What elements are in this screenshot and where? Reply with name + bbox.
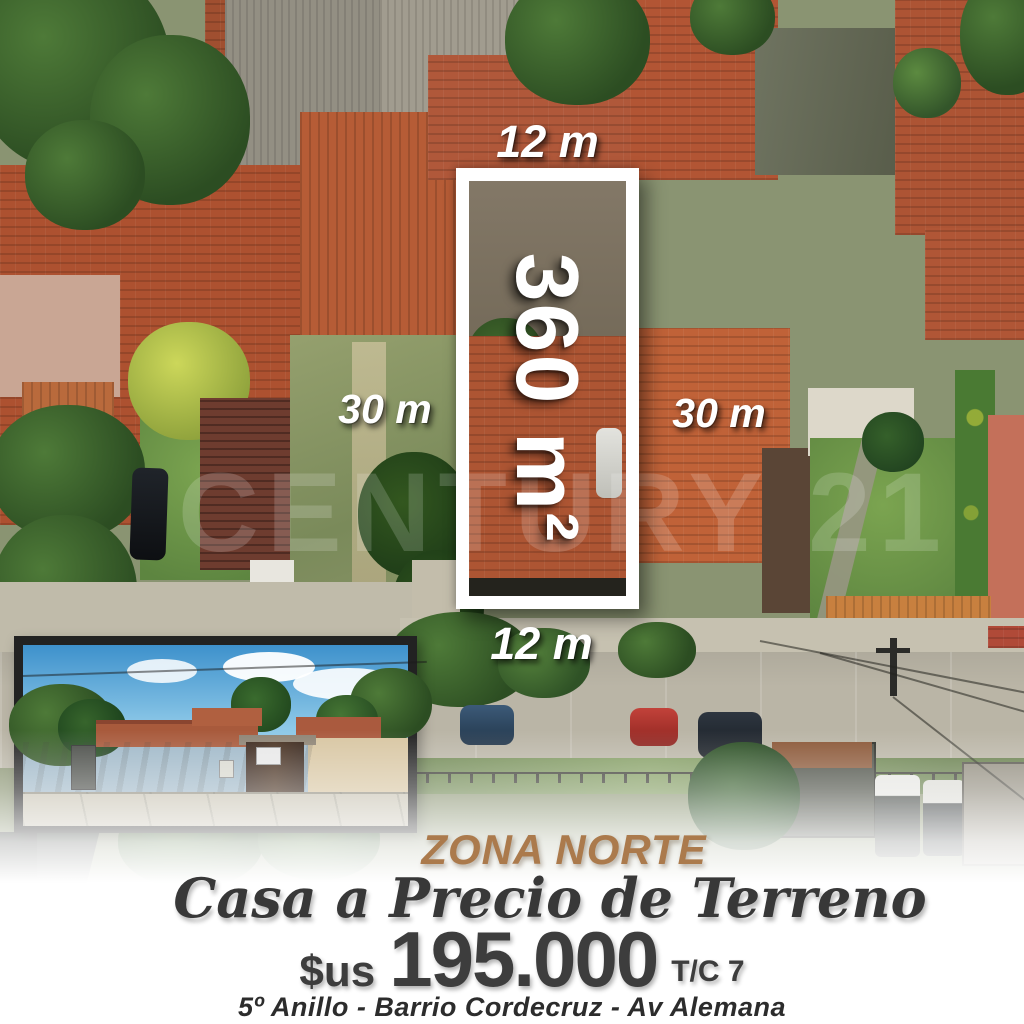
ad-text-block: ZONA NORTE Casa a Precio de Terreno $us … — [0, 826, 1024, 1023]
real-estate-ad: CENTURY 21 12 m 12 m 30 m 30 m 360 m² ZO… — [0, 0, 1024, 1024]
dimension-label-side-left: 30 m — [300, 386, 470, 433]
price-currency: $us — [299, 951, 375, 993]
parked-black-car — [129, 467, 168, 560]
area-label: 360 m² — [496, 253, 598, 544]
tree-canopy — [893, 48, 961, 118]
pink-wall — [0, 275, 120, 397]
dimension-label-front-top: 12 m — [456, 116, 639, 168]
dimension-label-front-bottom: 12 m — [450, 618, 633, 670]
inset-roof-upper — [192, 708, 261, 726]
price-suffix: T/C 7 — [671, 955, 744, 988]
tree-canopy — [25, 120, 145, 230]
dark-concrete-roof — [755, 28, 907, 175]
dimension-label-side-right: 30 m — [634, 390, 804, 437]
roof-block — [925, 228, 1024, 340]
price-line: $us 195.000 T/C 7 — [10, 926, 1024, 992]
power-crossarm — [876, 648, 910, 653]
price-amount: 195.000 — [389, 926, 657, 992]
roof-sliver — [988, 626, 1024, 648]
